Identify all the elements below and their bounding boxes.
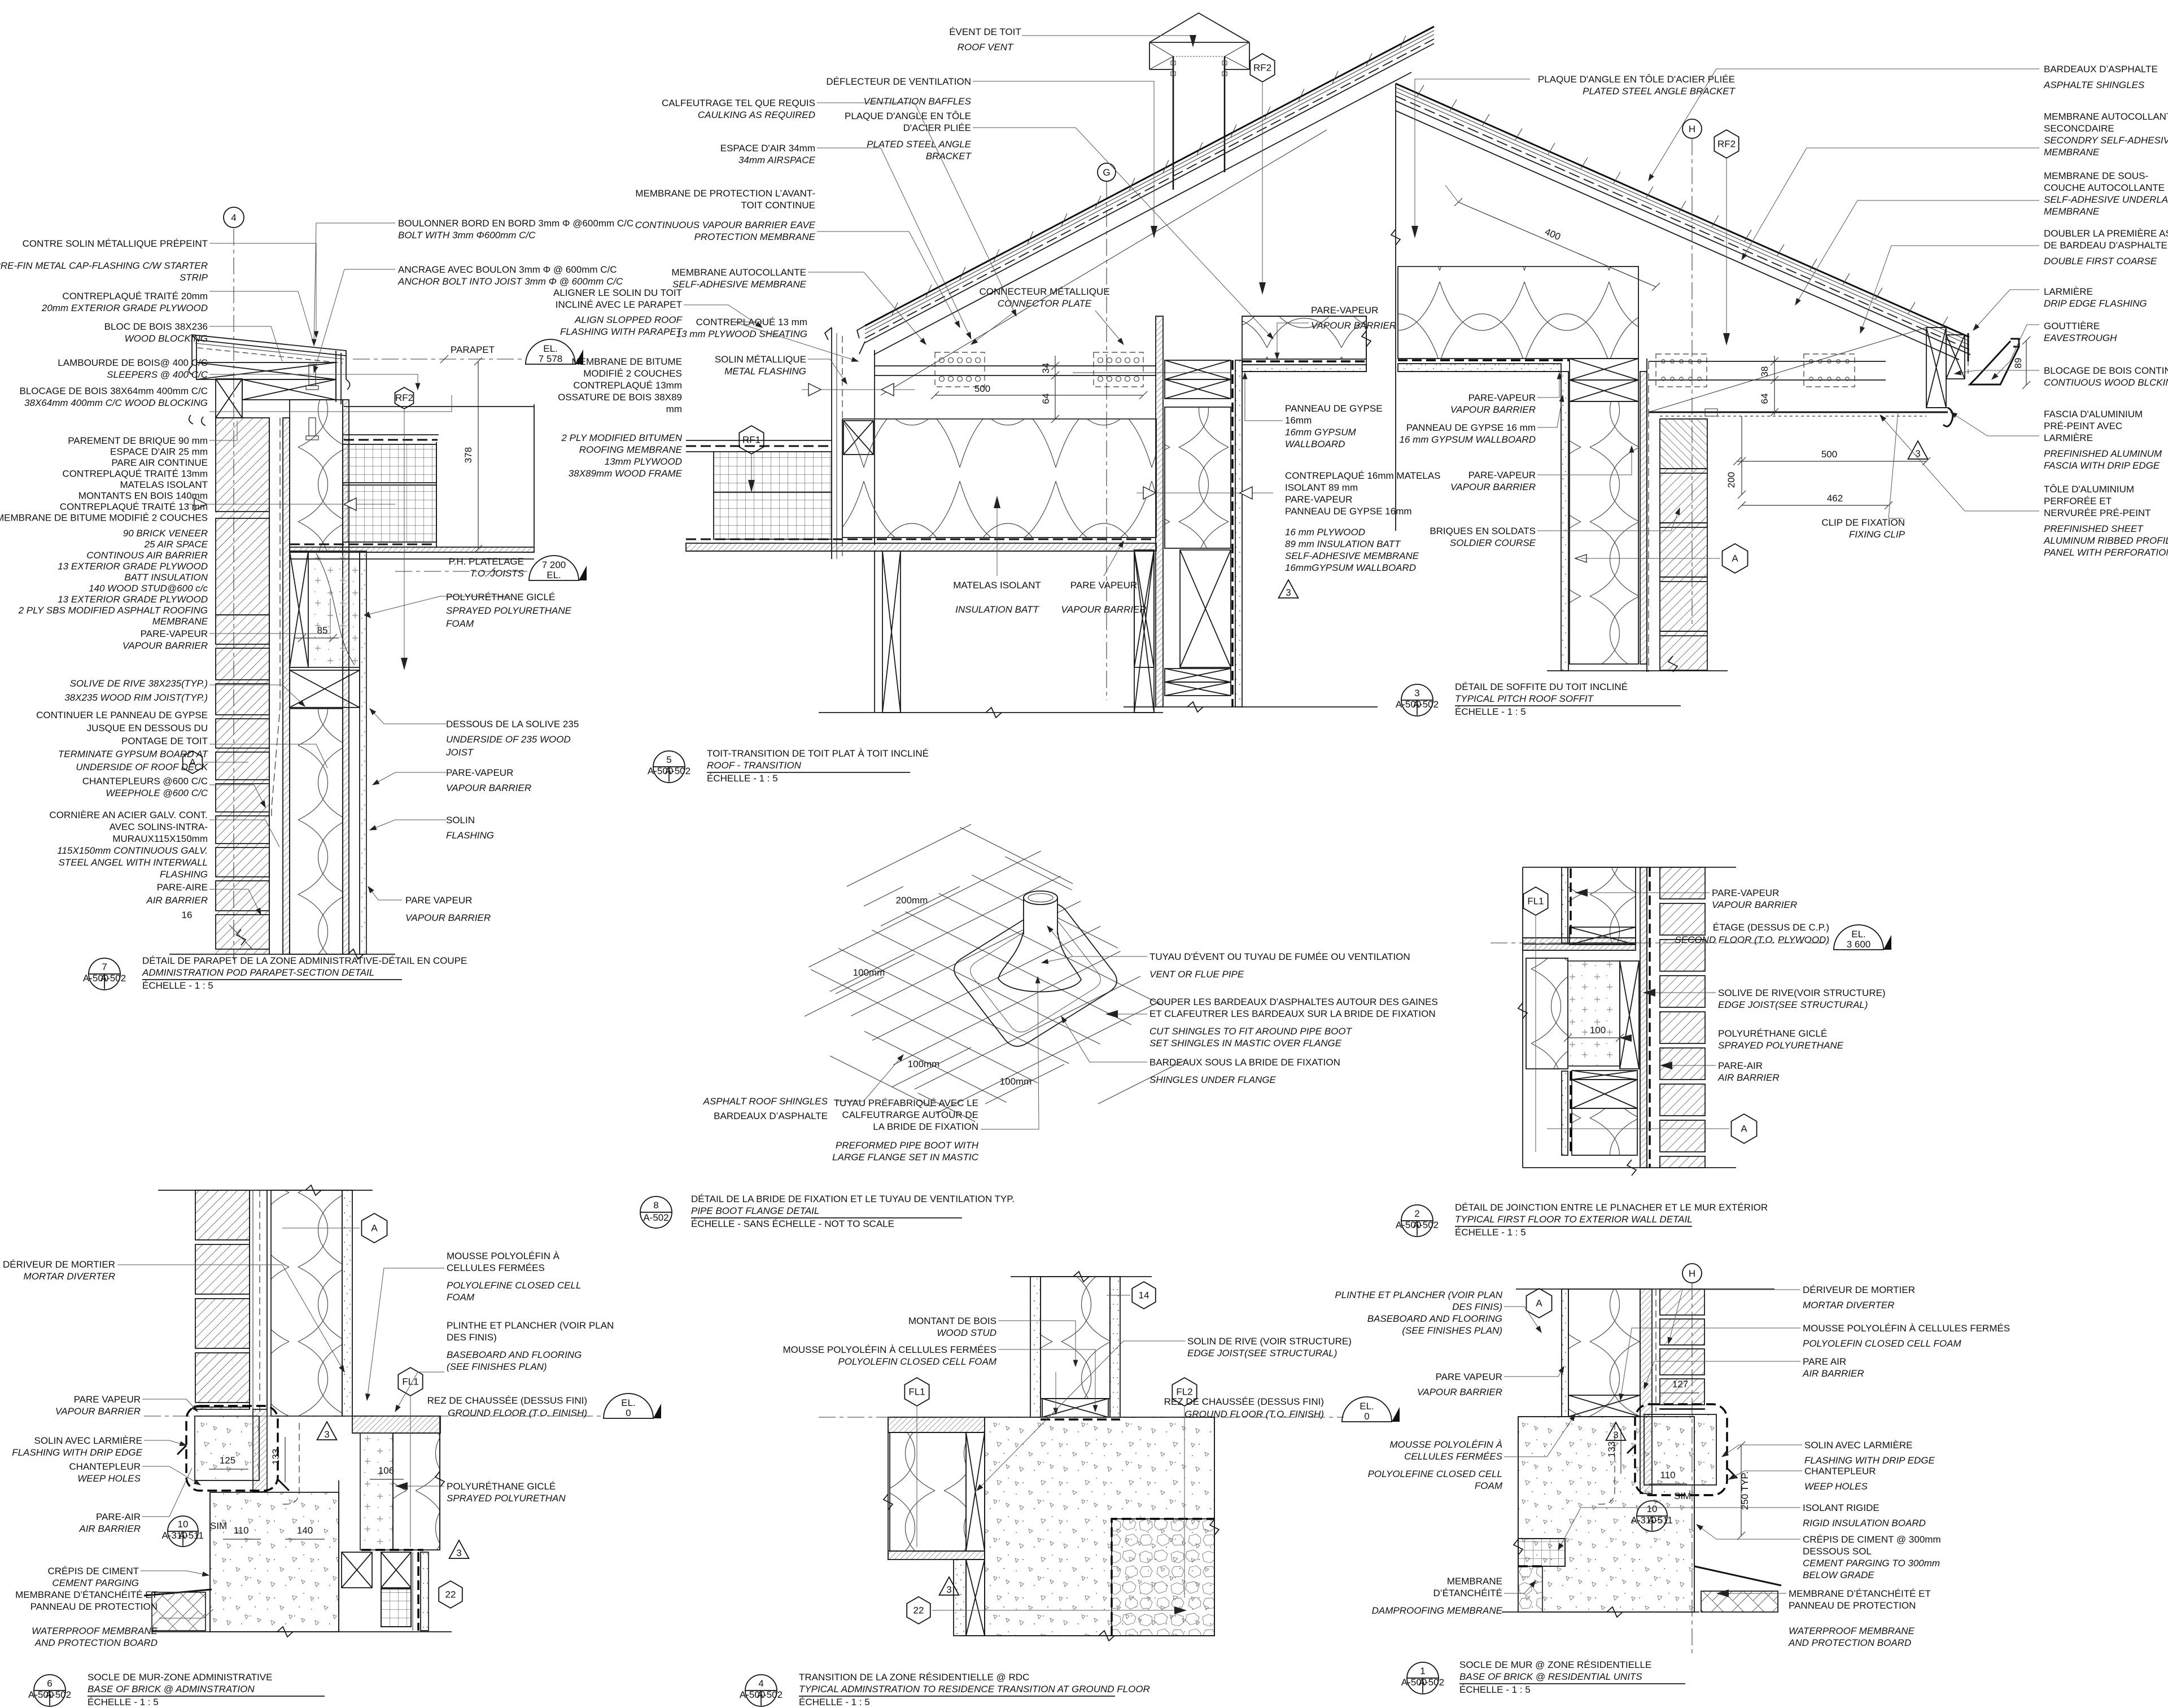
svg-text:PARE-AIRE: PARE-AIRE (157, 882, 208, 893)
svg-text:89: 89 (2013, 358, 2023, 369)
svg-text:VAPOUR BARRIER: VAPOUR BARRIER (1417, 1387, 1502, 1397)
svg-text:140 WOOD STUD@600 c/c: 140 WOOD STUD@600 c/c (89, 583, 208, 594)
svg-text:BATT INSULATION: BATT INSULATION (124, 572, 208, 583)
svg-text:PARE VAPEUR: PARE VAPEUR (74, 1394, 141, 1405)
svg-text:CEMENT PARGING TO 300mm: CEMENT PARGING TO 300mm (1803, 1558, 1940, 1569)
svg-text:EDGE JOIST(SEE STRUCTURAL): EDGE JOIST(SEE STRUCTURAL) (1718, 999, 1868, 1010)
svg-text:ÉCHELLE - 1 : 5: ÉCHELLE - 1 : 5 (1455, 1227, 1526, 1238)
svg-text:ALIGNER LE SOLIN DU TOIT: ALIGNER LE SOLIN DU TOIT (553, 287, 682, 298)
svg-text:SHINGLES UNDER FLANGE: SHINGLES UNDER FLANGE (1149, 1074, 1277, 1085)
svg-text:CONNECTEUR MÉTALLIQUE: CONNECTEUR MÉTALLIQUE (979, 286, 1109, 297)
svg-text:MEMBRANE: MEMBRANE (152, 616, 208, 627)
svg-text:34mm AIRSPACE: 34mm AIRSPACE (738, 155, 816, 165)
svg-text:SOLIVE DE RIVE(VOIR STRUCTURE): SOLIVE DE RIVE(VOIR STRUCTURE) (1718, 988, 1886, 998)
svg-text:125: 125 (220, 1455, 235, 1466)
svg-text:MORTAR DIVERTER: MORTAR DIVERTER (1803, 1300, 1894, 1311)
svg-text:SPRAYED POLYURETHAN: SPRAYED POLYURETHAN (447, 1493, 566, 1504)
svg-text:DÉFLECTEUR DE VENTILATION: DÉFLECTEUR DE VENTILATION (826, 76, 971, 87)
svg-text:PLATED STEEL ANGLE BRACKET: PLATED STEEL ANGLE BRACKET (1583, 86, 1736, 97)
svg-text:BASEBOARD AND FLOORING: BASEBOARD AND FLOORING (447, 1349, 582, 1360)
svg-text:16 mm GYPSUM WALLBOARD: 16 mm GYPSUM WALLBOARD (1399, 434, 1536, 445)
svg-text:CRÉPIS DE CIMENT @ 300mm: CRÉPIS DE CIMENT @ 300mm (1803, 1534, 1941, 1545)
svg-text:TYPICAL ADMINSTRATION TO RESID: TYPICAL ADMINSTRATION TO RESIDENCE TRANS… (799, 1684, 1150, 1694)
svg-text:6: 6 (47, 1678, 52, 1689)
svg-text:CONTREPLAQUÉ TRAITÉ 13 mm: CONTREPLAQUÉ TRAITÉ 13 mm (60, 501, 208, 512)
svg-text:1: 1 (1420, 1666, 1425, 1676)
svg-text:PANNEAU DE PROTECTION: PANNEAU DE PROTECTION (1789, 1600, 1916, 1611)
svg-text:DOUBLER LA PREMIÈRE ASSISE: DOUBLER LA PREMIÈRE ASSISE (2044, 228, 2168, 239)
svg-text:ALIGN SLOPPED ROOF: ALIGN SLOPPED ROOF (574, 314, 683, 325)
svg-text:10: 10 (1647, 1504, 1658, 1514)
svg-text:PARE-VAPEUR: PARE-VAPEUR (1712, 888, 1779, 898)
svg-text:MOUSSE POLYOLÉFIN À CELLULES F: MOUSSE POLYOLÉFIN À CELLULES FERMÉS (1803, 1323, 2010, 1334)
svg-text:INCLINÉ AVEC LE PARAPET: INCLINÉ AVEC LE PARAPET (556, 299, 682, 310)
svg-text:CHANTEPLEUR: CHANTEPLEUR (1804, 1466, 1876, 1477)
svg-text:T.O. JOISTS: T.O. JOISTS (470, 568, 524, 579)
svg-text:SOCLE DE MUR @ ZONE RÉSIDENTIE: SOCLE DE MUR @ ZONE RÉSIDENTIELLE (1459, 1659, 1651, 1670)
svg-text:CHANTEPLEURS @600 C/C: CHANTEPLEURS @600 C/C (82, 776, 208, 787)
svg-text:POLYOLEFINE CLOSED CELL: POLYOLEFINE CLOSED CELL (447, 1280, 581, 1291)
svg-text:RIGID INSULATION BOARD: RIGID INSULATION BOARD (1803, 1518, 1926, 1528)
svg-text:CONTREPLAQUÉ 13mm: CONTREPLAQUÉ 13mm (573, 380, 682, 391)
svg-text:MURAUX115X150mm: MURAUX115X150mm (112, 833, 208, 844)
svg-text:FLASHING WITH DRIP EDGE: FLASHING WITH DRIP EDGE (1804, 1455, 1935, 1466)
svg-text:SOLIN MÉTALLIQUE: SOLIN MÉTALLIQUE (715, 354, 806, 365)
svg-text:FL1: FL1 (908, 1386, 925, 1397)
svg-text:500: 500 (974, 383, 990, 394)
svg-text:STRIP: STRIP (180, 272, 208, 283)
svg-text:LAMBOURDE DE BOIS@ 400 C/C: LAMBOURDE DE BOIS@ 400 C/C (58, 357, 208, 368)
svg-text:PANNEAU DE GYPSE 16 mm: PANNEAU DE GYPSE 16 mm (1406, 422, 1536, 433)
svg-text:INSULATION BATT: INSULATION BATT (955, 604, 1039, 615)
svg-text:AVEC SOLINS-INTRA-: AVEC SOLINS-INTRA- (110, 822, 208, 832)
svg-text:FLASHING: FLASHING (160, 869, 208, 880)
svg-text:106: 106 (378, 1465, 394, 1476)
svg-text:DES FINIS): DES FINIS) (447, 1332, 497, 1343)
svg-text:MEMBRANE D’ÉTANCHÉITÉ ET: MEMBRANE D’ÉTANCHÉITÉ ET (1789, 1588, 1931, 1599)
svg-text:STEEL ANGEL WITH INTERWALL: STEEL ANGEL WITH INTERWALL (58, 857, 208, 868)
svg-text:VAPOUR BARRIER: VAPOUR BARRIER (1311, 320, 1396, 331)
svg-text:2: 2 (1414, 1208, 1419, 1219)
svg-text:0: 0 (1364, 1411, 1369, 1422)
svg-text:SOLIN DE RIVE (VOIR STRUCTURE): SOLIN DE RIVE (VOIR STRUCTURE) (1187, 1336, 1352, 1347)
svg-text:LARMIÈRE: LARMIÈRE (2044, 433, 2093, 443)
svg-text:RF2: RF2 (1717, 138, 1736, 149)
svg-text:200: 200 (1726, 472, 1737, 488)
svg-text:MOUSSE POLYOLÉFIN À: MOUSSE POLYOLÉFIN À (447, 1251, 560, 1261)
svg-text:115X150mm CONTINUOUS GALV.: 115X150mm CONTINUOUS GALV. (57, 845, 208, 856)
svg-text:FASCIA WITH DRIP EDGE: FASCIA WITH DRIP EDGE (2044, 460, 2160, 471)
svg-text:ESPACE D'AIR 25 mm: ESPACE D'AIR 25 mm (110, 447, 208, 457)
svg-text:7: 7 (102, 962, 107, 972)
svg-text:CONTINOUS AIR BARRIER: CONTINOUS AIR BARRIER (86, 550, 208, 561)
svg-text:COUPER LES BARDEAUX D'ASPHALTE: COUPER LES BARDEAUX D'ASPHALTES AUTOUR D… (1149, 997, 1438, 1007)
svg-text:3: 3 (324, 1429, 329, 1440)
svg-text:SIM: SIM (1674, 1491, 1691, 1501)
svg-text:25 AIR SPACE: 25 AIR SPACE (144, 539, 208, 550)
svg-text:WATERPROOF MEMBRANE: WATERPROOF MEMBRANE (32, 1626, 158, 1636)
svg-text:SOLDIER COURSE: SOLDIER COURSE (1450, 538, 1536, 548)
svg-text:CALFEUTRARGE AUTOUR DE: CALFEUTRARGE AUTOUR DE (842, 1109, 978, 1120)
svg-text:PARE-VAPEUR: PARE-VAPEUR (1468, 392, 1536, 403)
svg-text:BOLT WITH 3mm Φ600mm C/C: BOLT WITH 3mm Φ600mm C/C (398, 230, 536, 241)
svg-text:SOLIN: SOLIN (446, 815, 475, 825)
svg-text:100mm: 100mm (853, 967, 885, 978)
svg-text:COUCHE AUTOCOLLANTE: COUCHE AUTOCOLLANTE (2044, 182, 2165, 193)
svg-text:PARE-VAPEUR: PARE-VAPEUR (446, 767, 513, 778)
svg-text:TYPICAL PITCH ROOF SOFFIT: TYPICAL PITCH ROOF SOFFIT (1455, 693, 1594, 704)
svg-text:ANCRAGE AVEC BOULON 3mm Φ @ 6: ANCRAGE AVEC BOULON 3mm Φ @ 600mm C/C (398, 264, 617, 275)
svg-text:AND PROTECTION BOARD: AND PROTECTION BOARD (1788, 1637, 1911, 1648)
svg-text:BASEBOARD AND FLOORING: BASEBOARD AND FLOORING (1367, 1313, 1502, 1324)
svg-text:PARE-AIR: PARE-AIR (96, 1512, 141, 1522)
svg-text:EAVESTROUGH: EAVESTROUGH (2044, 333, 2117, 343)
svg-text:VAPOUR BARRIER: VAPOUR BARRIER (1450, 404, 1536, 415)
svg-text:BLOCAGE DE BOIS 38X64mm 400mm: BLOCAGE DE BOIS 38X64mm 400mm C/C (20, 386, 208, 396)
svg-text:2 PLY SBS MODIFIED ASPHALT ROO: 2 PLY SBS MODIFIED ASPHALT ROOFING (18, 605, 208, 616)
svg-text:500: 500 (1821, 449, 1837, 460)
svg-text:PIPE BOOT FLANGE DETAIL: PIPE BOOT FLANGE DETAIL (691, 1205, 819, 1216)
svg-text:VAPOUR BARRIER: VAPOUR BARRIER (1712, 899, 1797, 910)
svg-text:64: 64 (1041, 394, 1051, 404)
svg-text:PERFORÉE ET: PERFORÉE ET (2044, 496, 2112, 506)
svg-text:ROOF - TRANSITION: ROOF - TRANSITION (707, 760, 802, 771)
svg-text:13 mm PLYWOOD SHEATING: 13 mm PLYWOOD SHEATING (676, 329, 807, 339)
svg-text:MEMBRANE AUTOCOLLANTE: MEMBRANE AUTOCOLLANTE (671, 267, 806, 278)
svg-text:MATELAS ISOLANT: MATELAS ISOLANT (120, 479, 208, 490)
svg-text:MEMBRANE DE PROTECTION L’AVANT: MEMBRANE DE PROTECTION L’AVANT- (635, 188, 815, 199)
svg-text:3: 3 (456, 1548, 461, 1558)
svg-text:DES FINIS): DES FINIS) (1452, 1301, 1502, 1312)
svg-text:VENTILATION BAFFLES: VENTILATION BAFFLES (863, 96, 971, 107)
svg-text:mm: mm (666, 404, 682, 414)
svg-text:SOCLE DE MUR-ZONE ADMINISTRATI: SOCLE DE MUR-ZONE ADMINISTRATIVE (88, 1672, 272, 1683)
svg-text:10: 10 (178, 1519, 189, 1530)
svg-text:BRIQUES EN SOLDATS: BRIQUES EN SOLDATS (1430, 526, 1536, 536)
svg-text:16mmGYPSUM WALLBOARD: 16mmGYPSUM WALLBOARD (1285, 562, 1416, 573)
svg-text:MODIFIÉ 2 COUCHES: MODIFIÉ 2 COUCHES (583, 368, 682, 379)
svg-text:MEMBRANE AUTOCOLLANTE: MEMBRANE AUTOCOLLANTE (2044, 111, 2168, 122)
svg-text:AND PROTECTION BOARD: AND PROTECTION BOARD (34, 1637, 158, 1648)
svg-text:8: 8 (653, 1200, 658, 1211)
svg-text:ET CLAFEUTRER LES BARDEAUX SUR: ET CLAFEUTRER LES BARDEAUX SUR LA BRIDE … (1149, 1008, 1436, 1019)
svg-text:SOLIN AVEC LARMIÈRE: SOLIN AVEC LARMIÈRE (34, 1435, 142, 1446)
svg-text:H: H (1689, 1268, 1695, 1279)
svg-text:22: 22 (445, 1589, 456, 1600)
svg-text:VAPOUR BARRIER: VAPOUR BARRIER (1061, 604, 1146, 615)
svg-text:VENT OR FLUE PIPE: VENT OR FLUE PIPE (1149, 969, 1244, 980)
svg-text:16: 16 (182, 910, 193, 920)
svg-text:TUYAU D'ÉVENT OU TUYAU DE FUMÉ: TUYAU D'ÉVENT OU TUYAU DE FUMÉE OU VENTI… (1149, 951, 1410, 962)
svg-text:EL.: EL. (1851, 929, 1866, 940)
svg-text:GROUND FLOOR (T.O. FINISH): GROUND FLOOR (T.O. FINISH) (448, 1408, 587, 1418)
svg-text:DÉTAIL DE JOINCTION ENTRE LE: DÉTAIL DE JOINCTION ENTRE LE PLNACHER ET… (1455, 1202, 1768, 1213)
svg-text:CELLULES FERMÉES: CELLULES FERMÉES (447, 1263, 545, 1273)
svg-text:H: H (1689, 124, 1695, 134)
svg-text:SLEEPERS @ 400 C/C: SLEEPERS @ 400 C/C (107, 369, 208, 380)
svg-text:SET SHINGLES IN MASTIC OVER FL: SET SHINGLES IN MASTIC OVER FLANGE (1149, 1038, 1342, 1049)
svg-text:FLASHING WITH PARAPET: FLASHING WITH PARAPET (560, 326, 683, 337)
svg-text:REZ DE CHAUSSÉE (DESSUS FINI): REZ DE CHAUSSÉE (DESSUS FINI) (1164, 1396, 1324, 1407)
svg-text:4: 4 (231, 212, 236, 223)
svg-text:ROOFING MEMBRANE: ROOFING MEMBRANE (579, 444, 683, 455)
svg-text:ÉTAGE (DESSUS DE C.P.): ÉTAGE (DESSUS DE C.P.) (1713, 922, 1829, 933)
svg-text:ÉVENT DE TOIT: ÉVENT DE TOIT (949, 27, 1021, 37)
svg-text:MEMBRANE: MEMBRANE (2044, 147, 2100, 158)
svg-text:38X89mm WOOD FRAME: 38X89mm WOOD FRAME (569, 468, 683, 479)
svg-text:BASE OF BRICK @ ADMINSTRATION: BASE OF BRICK @ ADMINSTRATION (88, 1684, 255, 1694)
svg-text:PARE-VAPEUR: PARE-VAPEUR (1468, 470, 1536, 480)
svg-text:ASPHALT ROOF SHINGLES: ASPHALT ROOF SHINGLES (703, 1096, 828, 1107)
svg-text:MEMBRANE D’ÉTANCHÉITÉ ET: MEMBRANE D’ÉTANCHÉITÉ ET (15, 1589, 158, 1600)
svg-text:ÉCHELLE - 1 : 5: ÉCHELLE - 1 : 5 (799, 1697, 870, 1707)
svg-text:SELF-ADHESIVE MEMBRANE: SELF-ADHESIVE MEMBRANE (672, 279, 807, 290)
svg-text:DRIP EDGE FLASHING: DRIP EDGE FLASHING (2044, 298, 2147, 309)
svg-text:RF2: RF2 (395, 392, 413, 403)
svg-text:PONTAGE DE TOIT: PONTAGE DE TOIT (121, 736, 208, 746)
svg-text:ALUMINUM RIBBED PROFILE: ALUMINUM RIBBED PROFILE (2043, 535, 2168, 546)
svg-text:MATELAS ISOLANT: MATELAS ISOLANT (953, 580, 1041, 591)
svg-text:13 EXTERIOR GRADE PLYWOOD: 13 EXTERIOR GRADE PLYWOOD (58, 594, 208, 605)
svg-text:FOAM: FOAM (446, 618, 474, 629)
svg-text:A: A (371, 1222, 378, 1233)
svg-text:CONTIUOUS WOOD BLCKING: CONTIUOUS WOOD BLCKING (2044, 377, 2168, 388)
svg-text:P.H. PLATELAGE: P.H. PLATELAGE (448, 556, 524, 567)
svg-text:ÉCHELLE - 1 : 5: ÉCHELLE - 1 : 5 (88, 1697, 159, 1707)
svg-text:TUYAU PRÉFABRIQUÉ AVEC LE: TUYAU PRÉFABRIQUÉ AVEC LE (834, 1098, 978, 1108)
svg-text:SECOND FLOOR (T.O. PLYWOOD): SECOND FLOOR (T.O. PLYWOOD) (1675, 934, 1829, 945)
svg-text:WEEPHOLE @600 C/C: WEEPHOLE @600 C/C (106, 788, 208, 798)
svg-text:100mm: 100mm (908, 1059, 940, 1069)
svg-text:PARAPET: PARAPET (451, 344, 495, 355)
svg-text:4: 4 (758, 1678, 763, 1689)
svg-text:PROTECTION MEMBRANE: PROTECTION MEMBRANE (694, 231, 816, 242)
svg-text:PARE VAPEUR: PARE VAPEUR (1436, 1371, 1502, 1382)
svg-text:MEMBRANE DE SOUS-: MEMBRANE DE SOUS- (2044, 171, 2148, 181)
svg-text:A-502: A-502 (1413, 1220, 1439, 1230)
svg-text:DÉTAIL DE PARAPET DE LA ZONE: DÉTAIL DE PARAPET DE LA ZONE ADMINISTRAT… (142, 955, 467, 966)
svg-text:SPRAYED POLYURETHANE: SPRAYED POLYURETHANE (1718, 1040, 1844, 1051)
svg-text:PREFORMED PIPE BOOT WITH: PREFORMED PIPE BOOT WITH (836, 1140, 979, 1151)
svg-text:AIR BARRIER: AIR BARRIER (146, 895, 208, 906)
svg-text:EL.: EL. (621, 1397, 636, 1408)
svg-text:LARGE FLANGE SET IN MASTIC: LARGE FLANGE SET IN MASTIC (832, 1152, 979, 1163)
svg-text:OSSATURE DE BOIS 38X89: OSSATURE DE BOIS 38X89 (558, 392, 682, 403)
svg-text:34: 34 (1041, 363, 1051, 374)
svg-text:WATERPROOF MEMBRANE: WATERPROOF MEMBRANE (1789, 1626, 1915, 1636)
svg-text:ASPHALTE SHINGLES: ASPHALTE SHINGLES (2043, 80, 2145, 90)
svg-text:MEMBRANE: MEMBRANE (1447, 1576, 1502, 1587)
svg-text:EL.: EL. (547, 570, 561, 580)
svg-text:TERMINATE GYPSUM BOARD AT: TERMINATE GYPSUM BOARD AT (58, 749, 209, 759)
svg-text:ISOLANT 89 mm: ISOLANT 89 mm (1285, 482, 1358, 493)
svg-text:ADMINISTRATION POD PARAPET-SEC: ADMINISTRATION POD PARAPET-SECTION DETAI… (142, 967, 374, 978)
svg-text:0: 0 (626, 1408, 631, 1418)
svg-text:100: 100 (1590, 1025, 1606, 1036)
svg-text:ÉCHELLE - 1 : 5: ÉCHELLE - 1 : 5 (142, 980, 213, 991)
svg-text:PARE-AIR: PARE-AIR (1718, 1060, 1763, 1071)
svg-text:16 mm PLYWOOD: 16 mm PLYWOOD (1285, 527, 1365, 538)
svg-text:DE BARDEAU D’ASPHALTE: DE BARDEAU D’ASPHALTE (2044, 240, 2167, 251)
svg-text:TOIT CONTINUE: TOIT CONTINUE (741, 200, 815, 211)
svg-text:ÉCHELLE - 1 : 5: ÉCHELLE - 1 : 5 (1455, 706, 1526, 717)
svg-text:CONTRE SOLIN MÉTALLIQUE PRÉPE: CONTRE SOLIN MÉTALLIQUE PRÉPEINT (23, 238, 208, 249)
svg-text:BARDEAUX D’ASPHALTE: BARDEAUX D’ASPHALTE (2044, 64, 2158, 75)
svg-text:2 PLY MODIFIED BITUMEN: 2 PLY MODIFIED BITUMEN (561, 433, 683, 443)
svg-text:CONTINUER LE PANNEAU DE GYPSE: CONTINUER LE PANNEAU DE GYPSE (36, 710, 208, 720)
svg-text:BARDEAUX SOUS LA BRIDE DE FIXA: BARDEAUX SOUS LA BRIDE DE FIXATION (1149, 1057, 1340, 1068)
svg-text:MORTAR DIVERTER: MORTAR DIVERTER (24, 1271, 115, 1282)
svg-text:LA BRIDE DE FIXATION: LA BRIDE DE FIXATION (873, 1121, 978, 1132)
svg-text:38X235 WOOD RIM JOIST(TYP.): 38X235 WOOD RIM JOIST(TYP.) (64, 692, 208, 703)
svg-text:GOUTTIÈRE: GOUTTIÈRE (2044, 321, 2100, 331)
svg-text:VAPOUR BARRIER: VAPOUR BARRIER (1450, 482, 1536, 492)
svg-text:LARMIÈRE: LARMIÈRE (2044, 286, 2093, 297)
svg-text:MEMBRANE DE BITUME MODIFIÉ 2: MEMBRANE DE BITUME MODIFIÉ 2 COUCHES (0, 513, 208, 523)
svg-text:PAREMENT DE BRIQUE 90 mm: PAREMENT DE BRIQUE 90 mm (68, 435, 208, 446)
svg-text:100mm: 100mm (1000, 1076, 1032, 1087)
svg-text:85: 85 (317, 625, 328, 636)
svg-text:GROUND FLOOR (T.O. FINISH): GROUND FLOOR (T.O. FINISH) (1184, 1409, 1324, 1419)
svg-text:MEMBRANE: MEMBRANE (2044, 206, 2100, 217)
svg-text:A-511: A-511 (179, 1530, 204, 1541)
svg-text:CORNIÈRE AN ACIER GALV. CONT.: CORNIÈRE AN ACIER GALV. CONT. (49, 810, 208, 820)
svg-text:EDGE JOIST(SEE STRUCTURAL): EDGE JOIST(SEE STRUCTURAL) (1187, 1348, 1337, 1358)
svg-text:MOUSSE POLYOLÉFIN À CELLULES F: MOUSSE POLYOLÉFIN À CELLULES FERMÉES (783, 1344, 996, 1355)
svg-text:MONTANT DE BOIS: MONTANT DE BOIS (908, 1316, 996, 1326)
svg-text:7 200: 7 200 (542, 560, 566, 570)
svg-text:PREFINISHED SHEET: PREFINISHED SHEET (2044, 523, 2144, 534)
svg-text:WEEP HOLES: WEEP HOLES (1804, 1481, 1868, 1492)
svg-text:SECONCDAIRE: SECONCDAIRE (2044, 123, 2114, 134)
svg-text:A-502: A-502 (643, 1212, 668, 1223)
svg-text:PLINTHE ET PLANCHER (VOIR PLAN: PLINTHE ET PLANCHER (VOIR PLAN (1335, 1290, 1502, 1300)
svg-text:NERVURÉE PRÉ-PEINT: NERVURÉE PRÉ-PEINT (2044, 508, 2151, 518)
svg-text:SELF-ADHESIVE UNDERLAY: SELF-ADHESIVE UNDERLAY (2044, 194, 2168, 205)
svg-text:RF2: RF2 (1253, 62, 1271, 73)
svg-text:14: 14 (1139, 1290, 1149, 1300)
svg-text:A: A (1732, 553, 1738, 563)
svg-text:MOUSSE POLYOLÉFIN À: MOUSSE POLYOLÉFIN À (1389, 1439, 1502, 1450)
svg-text:FL2: FL2 (1176, 1386, 1192, 1397)
svg-text:FASCIA D'ALUMINIUM: FASCIA D'ALUMINIUM (2044, 409, 2143, 420)
svg-text:REZ DE CHAUSSÉE (DESSUS FINI): REZ DE CHAUSSÉE (DESSUS FINI) (427, 1395, 587, 1406)
svg-text:A-511: A-511 (1648, 1515, 1673, 1526)
svg-text:CONTREPLAQUÉ 16mm MATELAS: CONTREPLAQUÉ 16mm MATELAS (1285, 470, 1441, 481)
svg-text:D'ACIER PLIÉE: D'ACIER PLIÉE (903, 123, 971, 133)
svg-text:VAPOUR BARRIER: VAPOUR BARRIER (405, 912, 491, 923)
svg-text:PLAQUE D'ANGLE EN TÔLE: PLAQUE D'ANGLE EN TÔLE (845, 111, 971, 121)
svg-text:POLYURÉTHANE GICLÉ: POLYURÉTHANE GICLÉ (447, 1481, 556, 1492)
svg-text:VAPOUR BARRIER: VAPOUR BARRIER (123, 640, 208, 651)
svg-text:PANNEAU DE PROTECTION: PANNEAU DE PROTECTION (30, 1601, 158, 1612)
svg-text:3 600: 3 600 (1847, 939, 1871, 950)
svg-text:FLASHING WITH DRIP EDGE: FLASHING WITH DRIP EDGE (12, 1447, 142, 1458)
svg-text:SIM: SIM (210, 1521, 227, 1531)
svg-text:PARE-VAPEUR: PARE-VAPEUR (1311, 305, 1378, 316)
svg-text:BLOC DE BOIS 38X236: BLOC DE BOIS 38X236 (104, 321, 208, 332)
svg-text:CALFEUTRAGE TEL QUE REQUIS: CALFEUTRAGE TEL QUE REQUIS (662, 98, 815, 108)
svg-text:PARE-VAPEUR: PARE-VAPEUR (1285, 494, 1352, 505)
svg-text:A-502: A-502 (665, 766, 690, 776)
svg-text:PLATED STEEL ANGLE: PLATED STEEL ANGLE (867, 139, 972, 150)
svg-text:38X64mm 400mm C/C WOOD BLOCKIN: 38X64mm 400mm C/C WOOD BLOCKING (24, 397, 208, 408)
svg-text:PARE AIR: PARE AIR (1803, 1356, 1846, 1367)
svg-text:3: 3 (1915, 448, 1920, 459)
svg-text:SELF-ADHESIVE MEMBRANE: SELF-ADHESIVE MEMBRANE (1285, 551, 1419, 561)
svg-text:ÉCHELLE - 1 : 5: ÉCHELLE - 1 : 5 (707, 773, 778, 784)
svg-text:PARE AIR CONTINUE: PARE AIR CONTINUE (111, 457, 208, 468)
svg-text:ANCHOR BOLT INTO JOIST 3mm Φ @: ANCHOR BOLT INTO JOIST 3mm Φ @ 600mm C/C (397, 276, 623, 287)
svg-text:FLASHING: FLASHING (446, 830, 494, 841)
svg-text:PRÉ-PEINT AVEC: PRÉ-PEINT AVEC (2044, 421, 2122, 431)
svg-text:TOIT-TRANSITION DE TOIT PLAT À: TOIT-TRANSITION DE TOIT PLAT À TOIT INCL… (707, 748, 929, 759)
svg-text:AIR BARRIER: AIR BARRIER (1717, 1072, 1780, 1083)
svg-text:FL1: FL1 (1527, 896, 1544, 906)
svg-text:PRE-FIN METAL CAP-FLASHING C/W: PRE-FIN METAL CAP-FLASHING C/W STARTER (0, 260, 208, 271)
svg-text:POLYURÉTHANE GICLÉ: POLYURÉTHANE GICLÉ (446, 592, 555, 602)
svg-text:WOOD STUD: WOOD STUD (937, 1327, 996, 1338)
svg-text:EL.: EL. (1360, 1401, 1374, 1412)
svg-text:BLOCAGE DE BOIS CONTINU: BLOCAGE DE BOIS CONTINU (2044, 365, 2168, 376)
svg-text:20mm EXTERIOR GRADE PLYWOOD: 20mm EXTERIOR GRADE PLYWOOD (41, 303, 208, 313)
svg-text:EL.: EL. (543, 343, 558, 354)
svg-text:A: A (1536, 1298, 1542, 1308)
svg-text:140: 140 (297, 1525, 313, 1536)
svg-text:CHANTEPLEUR: CHANTEPLEUR (69, 1461, 141, 1472)
svg-text:SOLIN AVEC LARMIÈRE: SOLIN AVEC LARMIÈRE (1804, 1440, 1912, 1451)
svg-text:CLIP DE FIXATION: CLIP DE FIXATION (1821, 517, 1905, 528)
svg-text:PARE VAPEUR: PARE VAPEUR (405, 895, 472, 906)
svg-text:133: 133 (270, 1449, 281, 1465)
svg-text:TYPICAL FIRST FLOOR TO EXTERIO: TYPICAL FIRST FLOOR TO EXTERIOR WALL DET… (1455, 1214, 1693, 1225)
svg-text:MEMBRANE DE BITUME: MEMBRANE DE BITUME (571, 356, 682, 367)
svg-text:DAMPROOFING MEMBRANE: DAMPROOFING MEMBRANE (1372, 1605, 1503, 1616)
svg-text:RF1: RF1 (742, 434, 760, 445)
svg-text:D’ÉTANCHÉITÉ: D’ÉTANCHÉITÉ (1433, 1588, 1502, 1598)
svg-text:462: 462 (1827, 493, 1843, 504)
svg-text:CONTINUOUS VAPOUR BARRIER EAV: CONTINUOUS VAPOUR BARRIER EAVE (635, 220, 816, 230)
svg-text:CUT SHINGLES TO FIT AROUND PIP: CUT SHINGLES TO FIT AROUND PIPE BOOT (1149, 1026, 1353, 1037)
svg-text:DESSOUS SOL: DESSOUS SOL (1803, 1546, 1872, 1557)
svg-text:200mm: 200mm (896, 895, 928, 906)
svg-text:ISOLANT RIGIDE: ISOLANT RIGIDE (1803, 1502, 1879, 1513)
svg-text:JUSQUE EN DESSOUS DU: JUSQUE EN DESSOUS DU (87, 723, 208, 733)
svg-text:DÉRIVEUR DE MORTIER: DÉRIVEUR DE MORTIER (1803, 1285, 1915, 1295)
svg-text:BASE OF BRICK @ RESIDENTIAL UN: BASE OF BRICK @ RESIDENTIAL UNITS (1459, 1671, 1642, 1682)
svg-text:CRÉPIS DE CIMENT: CRÉPIS DE CIMENT (47, 1566, 139, 1576)
svg-text:A-502: A-502 (1413, 699, 1439, 710)
svg-text:METAL FLASHING: METAL FLASHING (724, 366, 806, 377)
svg-text:AIR BARRIER: AIR BARRIER (78, 1523, 141, 1534)
svg-text:POLYOLEFINE CLOSED CELL: POLYOLEFINE CLOSED CELL (1368, 1469, 1502, 1479)
svg-text:SECONDRY SELF-ADHESIVE: SECONDRY SELF-ADHESIVE (2044, 135, 2168, 146)
svg-text:378: 378 (463, 447, 474, 463)
svg-text:3: 3 (1286, 587, 1291, 598)
svg-text:22: 22 (913, 1605, 924, 1615)
svg-text:BOULONNER BORD EN BORD 3mm Φ @: BOULONNER BORD EN BORD 3mm Φ @600mm C/C (398, 218, 633, 229)
svg-text:PREFINISHED ALUMINUM: PREFINISHED ALUMINUM (2044, 448, 2162, 459)
svg-text:TRANSITION DE LA ZONE RÉSIDEN: TRANSITION DE LA ZONE RÉSIDENTIELLE @ RD… (799, 1672, 1029, 1683)
svg-text:CONTREPLAQUÉ TRAITÉ 20mm: CONTREPLAQUÉ TRAITÉ 20mm (62, 291, 208, 302)
svg-text:UNDERSIDE OF 235 WOOD: UNDERSIDE OF 235 WOOD (446, 734, 571, 745)
svg-text:110: 110 (1660, 1470, 1675, 1480)
svg-text:BARDEAUX D’ASPHALTE: BARDEAUX D’ASPHALTE (714, 1111, 828, 1121)
svg-text:PANNEAU DE GYPSE 16mm: PANNEAU DE GYPSE 16mm (1285, 506, 1412, 517)
svg-text:UNDERSIDE OF ROOF DECK: UNDERSIDE OF ROOF DECK (76, 762, 208, 772)
svg-text:CAULKING AS REQUIRED: CAULKING AS REQUIRED (698, 110, 815, 120)
svg-text:5: 5 (666, 754, 671, 765)
